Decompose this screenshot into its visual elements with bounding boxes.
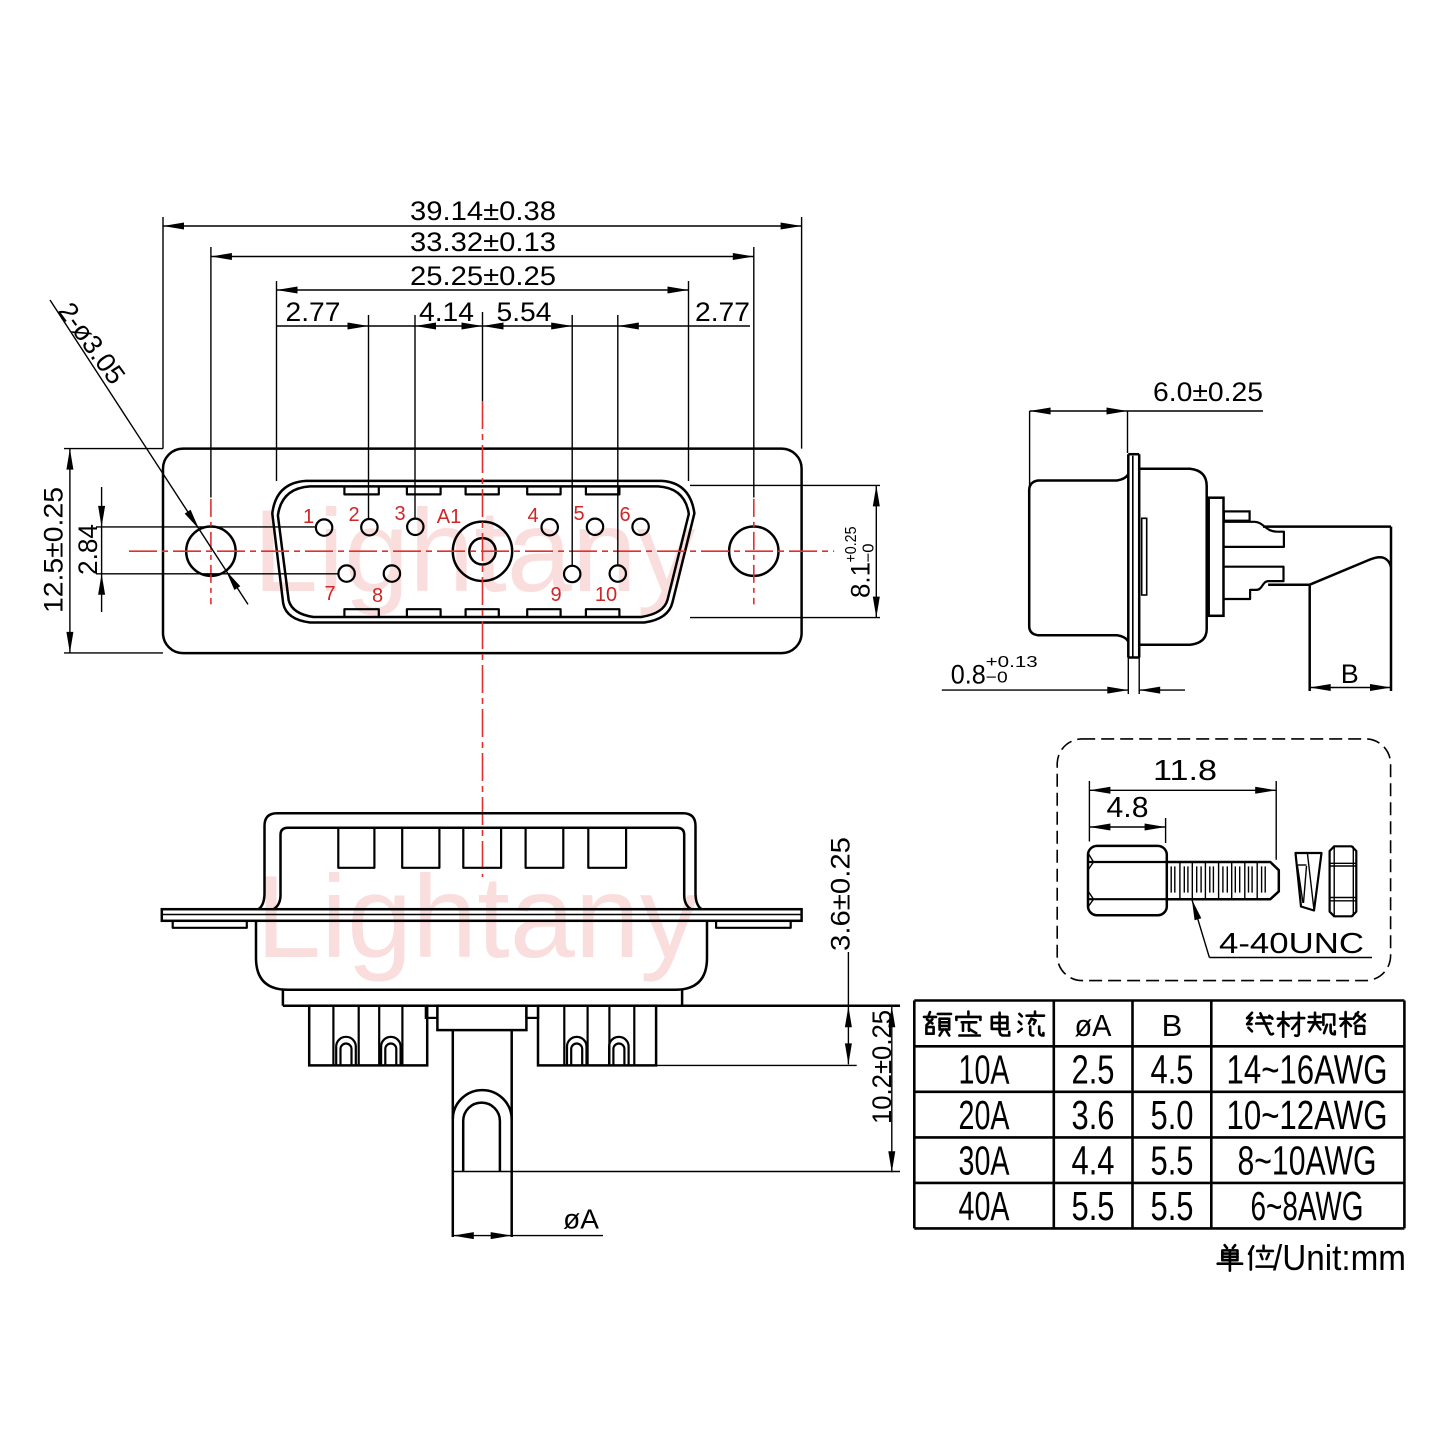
svg-text:20A: 20A <box>959 1092 1010 1138</box>
svg-text:4.4: 4.4 <box>1072 1138 1115 1184</box>
svg-text:6.0±0.25: 6.0±0.25 <box>1153 377 1263 407</box>
svg-text:5: 5 <box>573 503 584 525</box>
svg-text:3.6±0.25: 3.6±0.25 <box>826 837 856 951</box>
svg-text:4.14: 4.14 <box>419 297 474 327</box>
svg-text:10.2±0.25: 10.2±0.25 <box>867 1010 897 1124</box>
svg-text:1: 1 <box>303 506 314 528</box>
svg-text:4: 4 <box>527 505 538 527</box>
svg-text:5.5: 5.5 <box>1151 1138 1194 1184</box>
svg-text:11.8: 11.8 <box>1153 755 1217 787</box>
svg-text:B: B <box>1341 659 1359 689</box>
svg-text:39.14±0.38: 39.14±0.38 <box>410 196 556 226</box>
svg-text:10: 10 <box>595 584 617 606</box>
svg-text:6: 6 <box>619 504 630 526</box>
svg-text:2.77: 2.77 <box>286 297 341 327</box>
svg-text:8~10AWG: 8~10AWG <box>1238 1138 1377 1184</box>
svg-text:8: 8 <box>372 585 383 607</box>
svg-text:øA: øA <box>563 1204 599 1235</box>
svg-text:Lightany: Lightany <box>256 851 699 982</box>
svg-text:8.1: 8.1 <box>846 562 876 598</box>
svg-text:12.5±0.25: 12.5±0.25 <box>39 487 69 613</box>
svg-text:−0: −0 <box>986 670 1008 687</box>
svg-text:4.8: 4.8 <box>1107 792 1149 824</box>
svg-text:2.84: 2.84 <box>73 524 103 575</box>
svg-text:3: 3 <box>394 503 405 525</box>
svg-text:10~12AWG: 10~12AWG <box>1227 1092 1388 1138</box>
svg-text:B: B <box>1162 1008 1183 1043</box>
svg-text:4-40UNC: 4-40UNC <box>1219 928 1364 960</box>
svg-text:3.6: 3.6 <box>1072 1092 1115 1138</box>
svg-text:7: 7 <box>324 583 335 605</box>
svg-text:5.0: 5.0 <box>1151 1092 1194 1138</box>
svg-text:2: 2 <box>348 504 359 526</box>
svg-text:+0.25: +0.25 <box>843 526 860 562</box>
svg-text:6~8AWG: 6~8AWG <box>1251 1183 1364 1229</box>
svg-text:2.5: 2.5 <box>1072 1047 1115 1093</box>
svg-text:A1: A1 <box>437 506 461 528</box>
svg-text:øA: øA <box>1075 1008 1112 1043</box>
svg-text:0.8: 0.8 <box>951 659 986 689</box>
svg-text:−0: −0 <box>861 543 878 562</box>
svg-text:5.5: 5.5 <box>1151 1183 1194 1229</box>
svg-text:4.5: 4.5 <box>1151 1047 1194 1093</box>
svg-text:9: 9 <box>550 584 561 606</box>
svg-text:2.77: 2.77 <box>695 297 750 327</box>
svg-text:40A: 40A <box>959 1183 1010 1229</box>
svg-text:5.5: 5.5 <box>1072 1183 1115 1229</box>
svg-text:25.25±0.25: 25.25±0.25 <box>410 261 556 291</box>
svg-text:33.32±0.13: 33.32±0.13 <box>410 227 556 257</box>
svg-text:30A: 30A <box>959 1138 1010 1184</box>
svg-text:10A: 10A <box>959 1047 1010 1093</box>
svg-text:+0.13: +0.13 <box>986 654 1038 671</box>
svg-text:/Unit:mm: /Unit:mm <box>1273 1237 1406 1278</box>
svg-text:14~16AWG: 14~16AWG <box>1227 1047 1388 1093</box>
svg-text:5.54: 5.54 <box>497 297 552 327</box>
